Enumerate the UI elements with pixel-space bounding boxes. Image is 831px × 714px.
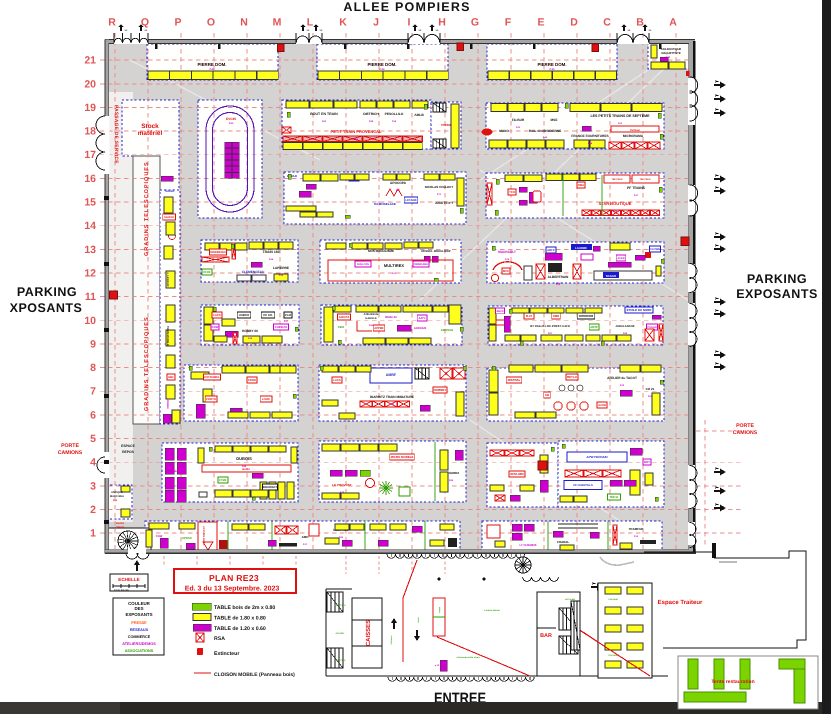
svg-text:ASSOCIATIONS: ASSOCIATIONS [125, 649, 154, 653]
svg-text:Ed MODELACE: Ed MODELACE [374, 202, 396, 206]
svg-text:RSA: RSA [214, 636, 225, 642]
svg-text:STAR BOUTIQUE: STAR BOUTIQUE [599, 201, 632, 206]
svg-text:TEE 91: TEE 91 [610, 496, 619, 499]
svg-text:MARC REA: MARC REA [110, 495, 124, 498]
svg-text:AMH: AMH [302, 535, 309, 539]
svg-text:CLEMENCEAU: CLEMENCEAU [242, 270, 265, 274]
svg-text:Tente restauration: Tente restauration [711, 679, 754, 685]
svg-text:5: 5 [90, 433, 96, 445]
svg-text:BAR: BAR [540, 633, 552, 639]
svg-text:P.44: P.44 [549, 68, 555, 71]
svg-text:AJECTA: AJECTA [339, 316, 350, 319]
svg-text:AZUR: AZUR [598, 403, 606, 407]
svg-text:AMRF: AMRF [386, 373, 397, 377]
svg-text:G: G [471, 17, 479, 29]
svg-text:PESOLLILO: PESOLLILO [385, 112, 404, 116]
svg-text:PARKING: PARKING [747, 272, 807, 286]
svg-text:PROD: PROD [248, 378, 256, 382]
svg-text:CLOWN: CLOWN [650, 248, 660, 251]
svg-text:12: 12 [84, 268, 96, 280]
svg-text:GILDEL: GILDEL [165, 190, 175, 193]
svg-text:APW FECHAIN: APW FECHAIN [586, 455, 607, 459]
svg-text:FRANCE FOURNITURES: FRANCE FOURNITURES [571, 134, 608, 138]
svg-text:Q: Q [141, 17, 149, 29]
svg-text:APOCOPA: APOCOPA [390, 181, 407, 185]
svg-text:TEE PKKS: TEE PKKS [612, 178, 623, 181]
svg-text:AATV: AATV [418, 317, 425, 320]
svg-text:MSE: MSE [551, 118, 558, 122]
svg-text:R-37: R-37 [526, 314, 533, 318]
svg-text:TCH: TCH [509, 190, 515, 194]
svg-text:PLAN RE23: PLAN RE23 [209, 573, 259, 583]
svg-text:SANCHI: SANCHI [164, 216, 174, 219]
svg-text:R: R [108, 17, 116, 29]
svg-text:MULTIREX: MULTIREX [384, 263, 404, 268]
svg-text:PORTE: PORTE [61, 443, 79, 449]
svg-text:CFRF: CFRF [203, 270, 211, 274]
svg-text:18: 18 [84, 126, 96, 138]
svg-text:EVC45: EVC45 [226, 117, 236, 121]
svg-text:A. LESIEUR: A. LESIEUR [166, 272, 169, 287]
svg-text:MAQUETTISTE: MAQUETTISTE [661, 52, 680, 55]
svg-text:RESEAUX: RESEAUX [130, 628, 149, 632]
svg-text:Espace Traiteur: Espace Traiteur [658, 599, 703, 606]
svg-text:9: 9 [90, 338, 96, 350]
svg-text:SM: SM [545, 393, 550, 397]
svg-text:7: 7 [90, 386, 96, 398]
svg-text:10: 10 [84, 315, 96, 327]
svg-text:MORBIHAN: MORBIHAN [210, 250, 225, 254]
svg-text:AMMYAG: AMMYAG [441, 328, 453, 332]
svg-text:EPM-43M: EPM-43M [510, 472, 524, 476]
svg-text:HORNBY: HORNBY [434, 388, 447, 392]
svg-text:8: 8 [90, 362, 96, 374]
svg-text:sortie: sortie [417, 616, 420, 622]
svg-text:H: H [438, 17, 446, 29]
svg-text:LE PROVOST: LE PROVOST [332, 483, 352, 487]
svg-text:MRF: MRF [168, 376, 174, 379]
svg-text:O: O [207, 17, 215, 29]
svg-text:a suivre laisser: a suivre laisser [484, 609, 500, 612]
svg-text:15: 15 [84, 197, 96, 209]
svg-text:PIERRE DOM.: PIERRE DOM. [197, 62, 226, 67]
svg-text:ASS.BOUTIQUE: ASS.BOUTIQUE [661, 48, 682, 51]
svg-text:ORNICARA: ORNICARA [414, 263, 428, 266]
svg-text:2: 2 [90, 504, 96, 516]
svg-text:INTERFER: INTERFER [579, 314, 594, 318]
svg-text:DES: DES [134, 606, 143, 611]
svg-text:MICRORAMA: MICRORAMA [623, 134, 644, 138]
svg-text:RESOUL MODULOWP: RESOUL MODULOWP [421, 249, 450, 253]
svg-text:ALLEE POMPIERS: ALLEE POMPIERS [343, 0, 470, 14]
svg-text:Stock: Stock [141, 123, 159, 130]
svg-text:CF CHANTILLS: CF CHANTILLS [573, 484, 593, 487]
svg-text:MCE: MCE [503, 269, 509, 273]
svg-text:0 1m 2m 3m: 0 1m 2m 3m [114, 589, 130, 592]
svg-text:SCANZI: SCANZI [606, 274, 617, 278]
svg-text:5 Entrees: 5 Entrees [390, 635, 393, 645]
svg-text:PIERRE DOM.: PIERRE DOM. [537, 62, 566, 67]
svg-text:ESPACE: ESPACE [121, 444, 135, 448]
svg-text:LAURME: LAURME [575, 246, 587, 250]
svg-text:TOILETTES: TOILETTES [335, 604, 347, 607]
svg-text:19: 19 [84, 102, 96, 114]
svg-text:ABCD: ABCD [496, 310, 503, 313]
svg-text:P.44: P.44 [379, 68, 385, 71]
svg-text:ESTRUMEL: ESTRUMEL [204, 375, 220, 379]
svg-text:TRAITEUR: TRAITEUR [608, 598, 618, 601]
svg-text:MOS MODULISME: MOS MODULISME [368, 249, 394, 253]
svg-text:JOUETS d'Y: JOUETS d'Y [435, 201, 454, 205]
svg-text:1: 1 [90, 528, 96, 540]
svg-text:CHADAL: CHADAL [557, 540, 569, 544]
svg-text:A: A [669, 17, 677, 29]
svg-text:TOILETTES: TOILETTES [335, 659, 347, 662]
svg-text:ATELIERS/DEMOS: ATELIERS/DEMOS [122, 642, 156, 646]
svg-text:PARKING: PARKING [17, 285, 77, 299]
svg-text:clients: clients [116, 525, 125, 529]
svg-text:BIARRITZ TRAIN MINIATURE: BIARRITZ TRAIN MINIATURE [370, 395, 414, 399]
svg-text:APFIVE: APFIVE [182, 536, 192, 540]
svg-text:LACS: LACS [333, 378, 341, 382]
svg-text:L: L [307, 17, 314, 29]
svg-text:BOUT EN TRAIN: BOUT EN TRAIN [310, 112, 338, 116]
svg-text:HOBBY 66: HOBBY 66 [242, 329, 258, 333]
svg-text:ETOILE DU NORD: ETOILE DU NORD [627, 308, 652, 312]
svg-text:J: J [373, 17, 379, 29]
svg-text:BOURGOT: BOURGOT [263, 485, 278, 489]
svg-text:ACER: ACER [617, 257, 624, 260]
svg-text:D: D [570, 17, 578, 29]
svg-text:XPOSANTS: XPOSANTS [10, 301, 83, 315]
svg-text:3: 3 [90, 480, 96, 492]
svg-text:FACS: FACS [213, 313, 221, 317]
svg-text:17: 17 [84, 149, 96, 161]
svg-text:P.44: P.44 [209, 68, 215, 71]
svg-text:matériel: matériel [138, 130, 163, 137]
svg-text:E: E [537, 17, 544, 29]
svg-text:TRAMFUR: TRAMFUR [629, 527, 645, 531]
svg-text:LAPIERRE: LAPIERRE [273, 266, 289, 270]
svg-text:CHINEZO: CHINEZO [275, 325, 288, 329]
svg-text:TRAIN MODELE: TRAIN MODELE [166, 326, 169, 346]
svg-text:MISTRAL: MISTRAL [508, 378, 521, 382]
svg-text:CAMIONS: CAMIONS [733, 430, 758, 436]
svg-text:CO 21: CO 21 [646, 387, 655, 391]
svg-text:DIAG OIS: DIAG OIS [357, 263, 369, 266]
svg-text:ATELIER du TACOT: ATELIER du TACOT [607, 376, 637, 380]
svg-text:ARFC: ARFC [547, 248, 555, 252]
svg-text:6: 6 [90, 409, 96, 421]
svg-text:REPOS: REPOS [122, 450, 135, 454]
svg-text:REYLO: REYLO [567, 375, 578, 379]
svg-text:LT CHEMINS: LT CHEMINS [520, 543, 537, 547]
svg-text:ACCUEIL: ACCUEIL [336, 632, 346, 635]
svg-text:DUBOIS: DUBOIS [236, 456, 252, 461]
svg-text:JURALANCHE: JURALANCHE [615, 324, 634, 328]
svg-text:BMAV-46: BMAV-46 [385, 316, 397, 319]
svg-text:B: B [636, 17, 644, 29]
svg-text:M: M [273, 17, 282, 29]
svg-text:C: C [603, 17, 611, 29]
svg-text:COMMERCE: COMMERCE [128, 635, 151, 639]
svg-text:4: 4 [90, 457, 96, 469]
svg-text:MAXO: MAXO [499, 129, 509, 133]
svg-text:N: N [240, 17, 248, 29]
svg-text:MICRO MODELE: MICRO MODELE [391, 455, 414, 459]
svg-text:GRADINS TELESCOPIQUES: GRADINS TELESCOPIQUES [144, 161, 150, 256]
svg-text:PF TRAINS: PF TRAINS [627, 186, 646, 190]
svg-text:20: 20 [84, 78, 96, 90]
svg-text:11: 11 [85, 291, 96, 303]
svg-text:FILISUR: FILISUR [512, 118, 525, 122]
svg-text:PLM: PLM [285, 313, 292, 317]
svg-text:P: P [174, 17, 181, 29]
svg-text:COW: COW [212, 325, 219, 329]
svg-text:LIVRE: LIVRE [262, 397, 270, 401]
svg-text:F: F [505, 17, 512, 29]
svg-text:TRAIN 160: TRAIN 160 [263, 250, 280, 254]
svg-text:LES PETITS TRAINS DE SEPTEME: LES PETITS TRAINS DE SEPTEME [590, 114, 650, 118]
svg-text:Ed. 3 du 13 Septembre. 2023: Ed. 3 du 13 Septembre. 2023 [185, 585, 280, 593]
svg-text:NICOLAS COLLECT: NICOLAS COLLECT [425, 185, 454, 189]
svg-text:TABLE bois de 2m x 0.80: TABLE bois de 2m x 0.80 [214, 605, 275, 611]
svg-text:LIMPER: LIMPER [239, 313, 250, 317]
svg-text:ANTIQUE: ANTIQUE [111, 491, 123, 494]
svg-text:Pullman: Pullman [630, 129, 641, 132]
svg-text:BOY: BOY [644, 460, 650, 464]
svg-text:PRISM: PRISM [441, 123, 451, 127]
svg-text:PETIT TRAIN PROVENCAL: PETIT TRAIN PROVENCAL [331, 129, 382, 134]
svg-text:TEE PKKS: TEE PKKS [640, 178, 651, 181]
svg-text:PORTE: PORTE [736, 423, 754, 429]
svg-text:CAISSES: CAISSES [365, 620, 372, 646]
svg-text:billets: billets [438, 607, 441, 614]
svg-text:P.23: P.23 [229, 122, 234, 125]
svg-text:SMD: SMD [553, 314, 559, 318]
svg-text:CLOISON MOBILE (Panneau bois): CLOISON MOBILE (Panneau bois) [214, 672, 295, 678]
svg-text:K: K [339, 17, 347, 29]
svg-text:ALBERTRAIN: ALBERTRAIN [548, 275, 569, 279]
svg-text:la BULLE: la BULLE [365, 317, 377, 320]
svg-text:P.02: P.02 [666, 56, 671, 59]
svg-text:RMA: RMA [578, 183, 584, 187]
svg-text:MAURAULT: MAURAULT [498, 250, 516, 254]
svg-text:14: 14 [84, 220, 96, 232]
svg-text:EXPOSANTS: EXPOSANTS [736, 287, 818, 301]
svg-text:CIRZ: CIRZ [338, 325, 345, 329]
svg-text:13: 13 [84, 244, 96, 256]
svg-text:Extincteur: Extincteur [214, 651, 239, 657]
svg-text:PROTO: PROTO [206, 397, 217, 401]
svg-text:I: I [408, 17, 411, 29]
svg-text:DIETRICH: DIETRICH [363, 112, 379, 116]
svg-text:EXPOSANTS: EXPOSANTS [125, 612, 152, 617]
svg-text:PRESSE: PRESSE [131, 621, 147, 625]
svg-text:ATELIER de: ATELIER de [364, 313, 379, 316]
svg-text:AMTP: AMTP [590, 326, 598, 329]
svg-text:ADERAIS: ADERAIS [414, 326, 427, 330]
svg-text:21: 21 [84, 55, 96, 67]
svg-text:ECHELLE: ECHELLE [118, 577, 139, 582]
svg-text:RAIL 43 OBSIDIENNE: RAIL 43 OBSIDIENNE [529, 129, 562, 133]
svg-text:p.10: p.10 [435, 664, 440, 667]
svg-text:PASSAGE DE SERVICE: PASSAGE DE SERVICE [113, 105, 119, 164]
svg-text:GRADINS TELESCOPIQUES: GRADINS TELESCOPIQUES [144, 316, 150, 411]
svg-text:AMLB: AMLB [414, 113, 424, 117]
svg-text:TABLE de 1.80 x 0.80: TABLE de 1.80 x 0.80 [214, 616, 266, 622]
svg-text:PE 321: PE 321 [263, 313, 273, 317]
svg-text:TABLE de 1.20 x 0.60: TABLE de 1.20 x 0.60 [214, 626, 266, 632]
svg-text:CAMIONS: CAMIONS [58, 450, 83, 456]
svg-text:LETADB: LETADB [405, 198, 416, 202]
svg-text:BT RAIL45 LOC.PREST. DJFR: BT RAIL45 LOC.PREST. DJFR [530, 324, 569, 328]
svg-text:FTMF: FTMF [219, 478, 227, 482]
svg-text:16: 16 [84, 173, 96, 185]
svg-text:APDREW: APDREW [166, 398, 169, 409]
svg-text:CAW: CAW [156, 534, 163, 538]
svg-text:a bonneau suite et jeu: a bonneau suite et jeu [457, 656, 481, 659]
svg-text:VOGELBURG: VOGELBURG [165, 470, 181, 473]
svg-text:PIERRE DOM.: PIERRE DOM. [367, 62, 396, 67]
svg-text:Buffet: Buffet [242, 468, 250, 471]
svg-text:APPMF: APPMF [374, 327, 384, 330]
